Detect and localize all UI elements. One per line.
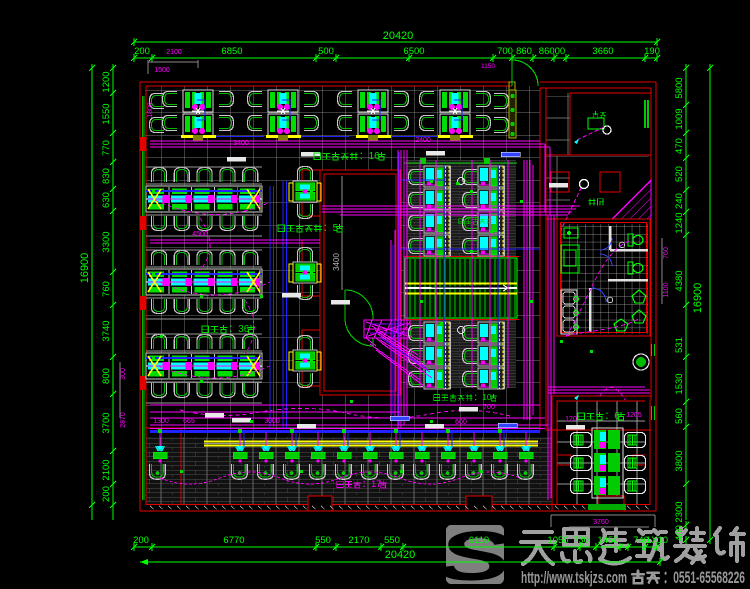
svg-text:1800: 1800 [147, 102, 154, 118]
svg-text:2300: 2300 [674, 501, 685, 522]
svg-text:730: 730 [573, 535, 589, 546]
svg-text:3740: 3740 [101, 320, 112, 341]
svg-text:200: 200 [134, 46, 150, 57]
svg-text:760: 760 [101, 281, 112, 297]
svg-text:860: 860 [516, 46, 532, 57]
svg-text:2170: 2170 [348, 535, 369, 546]
svg-text:1450: 1450 [597, 535, 618, 546]
svg-text:2100: 2100 [166, 49, 182, 56]
svg-text:700: 700 [497, 46, 513, 57]
svg-text:665: 665 [183, 418, 195, 425]
svg-text:3660: 3660 [592, 46, 613, 57]
svg-text:120: 120 [565, 416, 577, 423]
svg-text:16900: 16900 [79, 253, 91, 284]
svg-text:1240: 1240 [674, 212, 685, 233]
svg-text:830: 830 [101, 168, 112, 184]
svg-text:2870: 2870 [120, 412, 127, 428]
svg-text:3700: 3700 [101, 412, 112, 433]
svg-text:20420: 20420 [385, 549, 416, 561]
svg-text:1150: 1150 [481, 63, 495, 70]
svg-text:：16: ：16 [359, 151, 380, 162]
svg-text:4500: 4500 [192, 231, 208, 238]
svg-text:5800: 5800 [674, 77, 685, 98]
svg-text:1009: 1009 [674, 108, 685, 129]
svg-text:1200: 1200 [101, 71, 112, 92]
svg-text:630: 630 [101, 192, 112, 208]
svg-text:3760: 3760 [593, 519, 609, 526]
svg-text:：10: ：10 [474, 392, 492, 402]
svg-text:200: 200 [133, 535, 149, 546]
svg-text:200: 200 [101, 486, 112, 502]
svg-text:2100: 2100 [101, 459, 112, 480]
svg-text:800: 800 [101, 368, 112, 384]
svg-text:760: 760 [663, 247, 670, 259]
svg-text:600: 600 [455, 419, 467, 426]
svg-text:1050: 1050 [547, 535, 568, 546]
svg-text:86000: 86000 [539, 46, 565, 57]
svg-text:190: 190 [644, 46, 660, 57]
svg-text:770: 770 [101, 140, 112, 156]
svg-text:1100: 1100 [663, 282, 670, 297]
svg-text:1205: 1205 [626, 412, 642, 419]
svg-text:：5: ：5 [323, 223, 339, 234]
svg-text:1X10: 1X10 [646, 535, 668, 546]
svg-text:400: 400 [674, 525, 685, 541]
svg-text:4380: 4380 [674, 270, 685, 291]
svg-text:1530: 1530 [674, 373, 685, 394]
svg-text:3400: 3400 [332, 253, 341, 271]
svg-text:2400: 2400 [415, 137, 431, 144]
svg-text:550: 550 [384, 535, 400, 546]
svg-text:6110: 6110 [469, 535, 489, 546]
svg-text:500: 500 [318, 46, 334, 57]
svg-text:700: 700 [483, 404, 495, 411]
svg-text:240: 240 [674, 193, 685, 209]
svg-text:560: 560 [674, 408, 685, 424]
svg-text:1550: 1550 [101, 103, 112, 124]
svg-text:：6: ：6 [605, 411, 620, 422]
svg-text:520: 520 [674, 166, 685, 182]
svg-text:1300: 1300 [153, 418, 169, 425]
svg-text:3000: 3000 [264, 418, 280, 425]
svg-text:3800: 3800 [674, 450, 685, 471]
svg-text:531: 531 [674, 337, 685, 353]
svg-text:：36: ：36 [229, 324, 250, 335]
svg-text:3400: 3400 [233, 140, 249, 147]
svg-text:1500: 1500 [154, 67, 170, 74]
svg-text:：17: ：17 [362, 479, 381, 489]
svg-text:550: 550 [315, 535, 331, 546]
svg-text:300: 300 [120, 368, 127, 380]
svg-text:6500: 6500 [403, 46, 424, 57]
svg-text:20420: 20420 [383, 30, 414, 42]
svg-text:6850: 6850 [221, 46, 242, 57]
svg-text:S: S [437, 516, 512, 589]
svg-text:470: 470 [674, 138, 685, 154]
svg-text:16900: 16900 [692, 283, 704, 314]
svg-text:：0551-65568226: ：0551-65568226 [663, 568, 745, 587]
svg-text:http://www.tskjzs.com: http://www.tskjzs.com [521, 568, 627, 587]
svg-text:3300: 3300 [101, 231, 112, 252]
svg-text:6770: 6770 [223, 535, 244, 546]
